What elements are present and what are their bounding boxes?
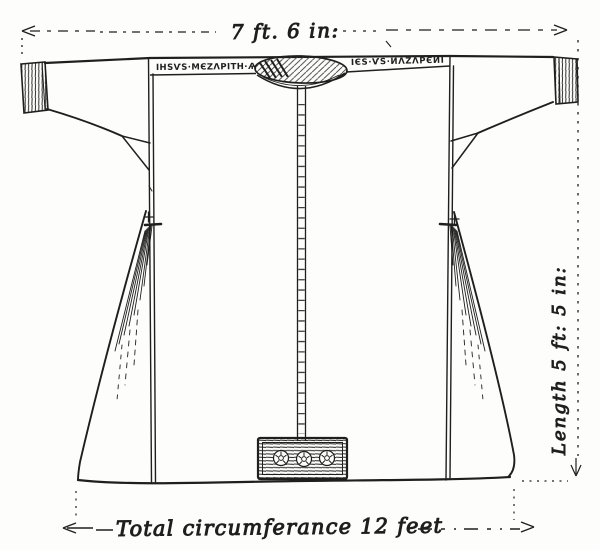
stray-pen-mark	[386, 41, 391, 47]
figure-canvas: 7 ft. 6 in: Length 5 ft: 5 in: Total cir…	[0, 0, 600, 550]
length-label: Length 5 ft: 5 in:	[549, 265, 570, 456]
center-band-edges	[298, 86, 306, 441]
left-sleeve-underside	[47, 109, 122, 136]
circumference-right-arrowhead	[521, 522, 534, 532]
top-width-label: 7 ft. 6 in:	[231, 18, 340, 44]
tunic-diagram: 7 ft. 6 in: Length 5 ft: 5 in: Total cir…	[0, 0, 600, 550]
collar	[255, 55, 348, 89]
dimension-top-width: 7 ft. 6 in:	[22, 18, 567, 58]
right-cuff	[554, 57, 578, 104]
left-gore-hatching	[115, 225, 152, 400]
circumference-label: Total circumferance 12 feet	[116, 514, 443, 541]
right-body-seam	[446, 56, 454, 480]
circumference-left-dash	[67, 528, 113, 530]
left-body-seam	[149, 58, 156, 483]
dimension-length: Length 5 ft: 5 in:	[522, 40, 581, 481]
band-bottom-edge-left	[150, 74, 256, 76]
dimension-circumference: Total circumferance 12 feet	[63, 489, 534, 541]
left-side-flare	[78, 211, 146, 480]
left-slit-bar	[145, 224, 161, 225]
left-cuff	[21, 62, 48, 113]
center-band	[298, 86, 306, 441]
inscription-text-left: ІНЅѴЅ·МЄΖΛРІТН·Ѧ	[156, 61, 257, 73]
hem-panel-rosette-right	[320, 451, 335, 466]
right-cuff-band	[554, 57, 578, 104]
right-underarm-gusset	[451, 133, 478, 168]
right-slit-bar	[440, 224, 456, 225]
inscription-text-right: ІЄЅ·ѴЅ·ИΛΖΛРЄИІ	[351, 55, 445, 68]
left-underarm-gusset	[122, 136, 150, 170]
right-side-flare	[454, 212, 514, 477]
right-sleeve-underside	[478, 102, 553, 133]
hem-panel	[258, 438, 347, 479]
hem-panel-rosette-left	[274, 451, 289, 466]
right-gore-hatching	[450, 225, 485, 400]
hem-panel-rosette-center	[297, 452, 312, 467]
